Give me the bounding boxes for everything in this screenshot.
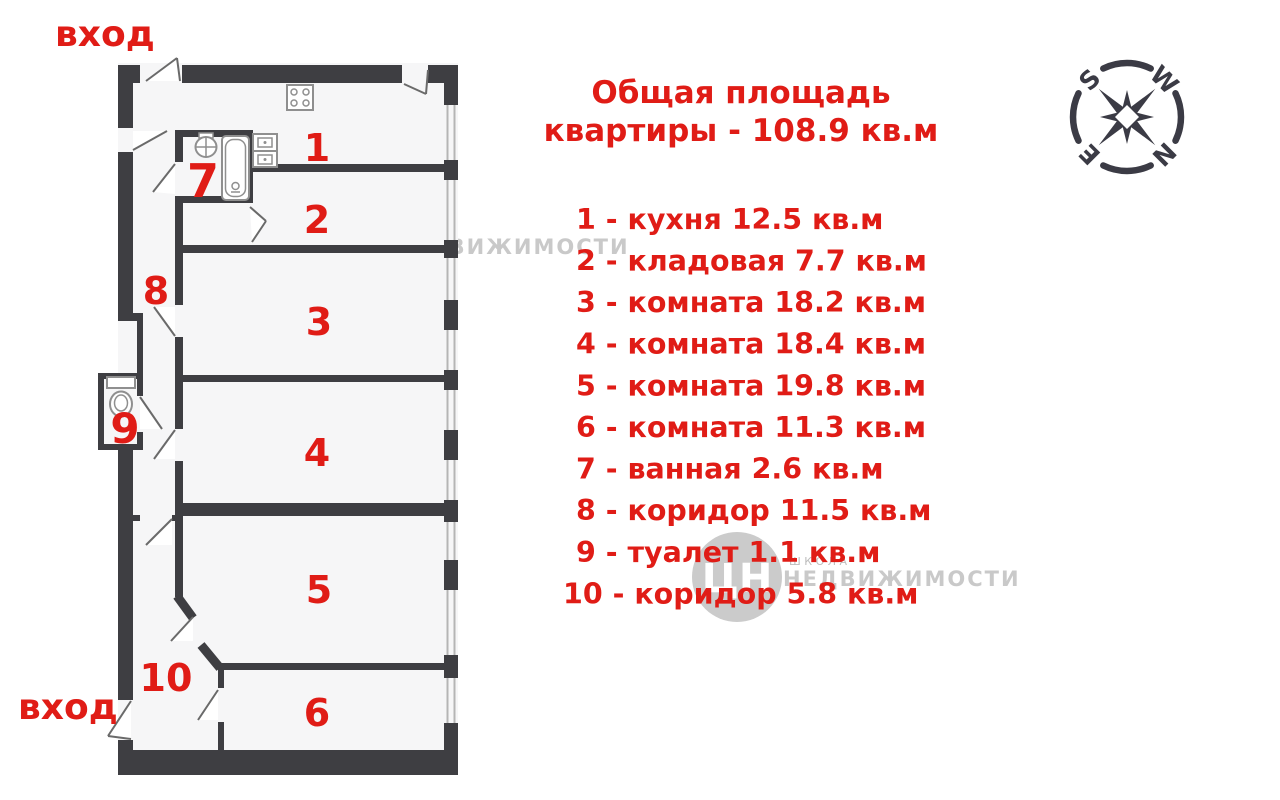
- wall-right-7: [444, 500, 458, 522]
- wall-toilet-left: [98, 373, 104, 450]
- legend-item-4: 4 - комната 18.4 кв.м: [576, 328, 926, 361]
- room-label-2: 2: [304, 198, 330, 242]
- wall-div-4-5: [175, 503, 445, 516]
- bathtub-icon: [222, 136, 249, 200]
- wall-right-5: [444, 370, 458, 390]
- floor-plan-canvas: ЦН ШКОЛА НЕДВИЖИМОСТИ etagi ЦН ШКОЛА НЕД…: [0, 0, 1280, 800]
- wall-right-10: [444, 723, 458, 775]
- room-label-9: 9: [110, 404, 139, 453]
- legend-item-8: 8 - коридор 11.5 кв.м: [576, 494, 931, 527]
- wall-room6-left-2: [218, 722, 224, 750]
- room-label-5: 5: [306, 568, 332, 612]
- wall-left-3: [118, 450, 133, 700]
- legend-item-10: 10 - коридор 5.8 кв.м: [563, 578, 918, 611]
- legend-item-3: 3 - комната 18.2 кв.м: [576, 286, 926, 319]
- title-block: Общая площадь квартиры - 108.9 кв.м: [544, 75, 939, 149]
- room-label-10: 10: [140, 656, 193, 700]
- wall-div-1-2: [250, 164, 445, 172]
- wall-right-2: [444, 160, 458, 180]
- room-label-6: 6: [304, 691, 330, 735]
- legend-item-2: 2 - кладовая 7.7 кв.м: [576, 245, 927, 278]
- wall-corridor-4: [175, 461, 183, 597]
- stove-icon: [287, 85, 313, 110]
- wall-right-4: [444, 300, 458, 330]
- wall-top-3: [428, 65, 445, 83]
- room-label-3: 3: [306, 300, 332, 344]
- wall-div-5-6: [218, 663, 445, 670]
- title-line-1: Общая площадь: [591, 75, 890, 111]
- entrance-label-bottom: вход: [18, 687, 118, 728]
- wall-left-2: [118, 152, 133, 318]
- wall-right-8: [444, 560, 458, 590]
- wall-toilet-right-1: [137, 373, 143, 396]
- title-line-2: квартиры - 108.9 кв.м: [544, 113, 939, 149]
- wall-right-3: [444, 240, 458, 258]
- legend-list: 1 - кухня 12.5 кв.м 2 - кладовая 7.7 кв.…: [563, 203, 931, 611]
- wall-div-8-10a: [133, 515, 140, 521]
- legend-item-1: 1 - кухня 12.5 кв.м: [576, 203, 883, 236]
- wall-right-1: [444, 65, 458, 105]
- room-label-4: 4: [304, 431, 330, 475]
- wall-div-2-3: [175, 245, 445, 253]
- wall-div-8-10b: [172, 515, 177, 521]
- wall-top-2: [182, 65, 402, 83]
- entrance-label-top: вход: [55, 14, 155, 55]
- room-label-1: 1: [304, 126, 330, 170]
- wall-left-1: [118, 65, 133, 128]
- wall-corridor-3: [175, 337, 183, 429]
- legend-item-6: 6 - комната 11.3 кв.м: [576, 411, 926, 444]
- room-label-7: 7: [187, 154, 219, 208]
- floor-plan-page: ЦН ШКОЛА НЕДВИЖИМОСТИ etagi ЦН ШКОЛА НЕД…: [0, 0, 1280, 800]
- kitchen-sink-icon: [253, 134, 277, 167]
- room-label-8: 8: [143, 269, 169, 313]
- wall-bottom: [118, 750, 458, 775]
- wall-right-6: [444, 430, 458, 460]
- legend-item-7: 7 - ванная 2.6 кв.м: [576, 453, 884, 486]
- compass-rose: S W E N: [1073, 60, 1184, 172]
- wall-left-thin: [137, 318, 143, 375]
- wall-right-9: [444, 655, 458, 678]
- legend-item-9: 9 - туалет 1.1 кв.м: [576, 536, 880, 569]
- wall-div-3-4: [175, 375, 445, 382]
- legend-item-5: 5 - комната 19.8 кв.м: [576, 370, 926, 403]
